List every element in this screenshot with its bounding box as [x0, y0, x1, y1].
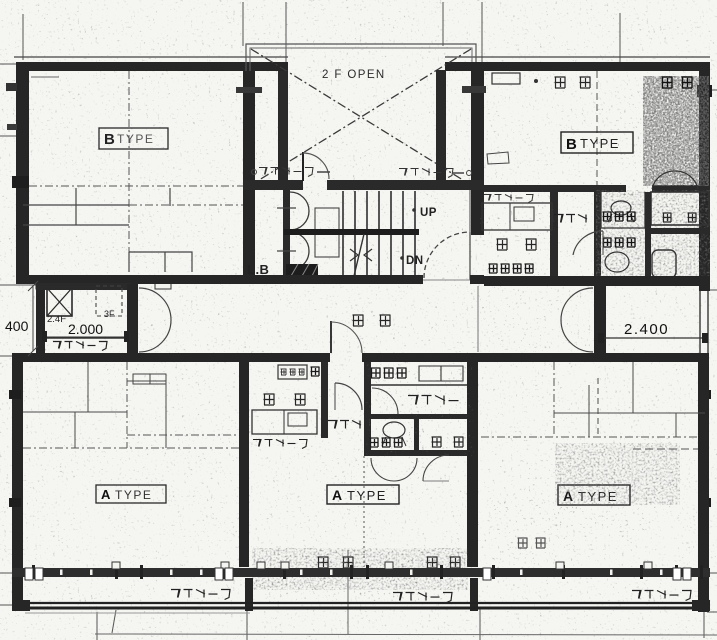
svg-text:TYPE: TYPE: [115, 488, 152, 502]
svg-text:DN: DN: [406, 255, 424, 267]
svg-text:400: 400: [5, 318, 29, 334]
svg-text:UP: UP: [420, 207, 437, 219]
svg-text:2.4F: 2.4F: [47, 314, 66, 325]
svg-text:TYPE: TYPE: [347, 488, 387, 503]
svg-text:3F: 3F: [104, 309, 115, 319]
svg-text:2.000: 2.000: [68, 321, 103, 337]
svg-text:A: A: [101, 487, 111, 502]
svg-text:TYPE: TYPE: [117, 132, 154, 146]
svg-text:2.400: 2.400: [624, 321, 669, 338]
svg-text:A: A: [332, 487, 342, 503]
svg-text:L.B: L.B: [247, 262, 269, 277]
svg-text:2 F OPEN: 2 F OPEN: [322, 69, 386, 81]
svg-text:B: B: [566, 136, 577, 153]
svg-text:B: B: [104, 131, 115, 148]
